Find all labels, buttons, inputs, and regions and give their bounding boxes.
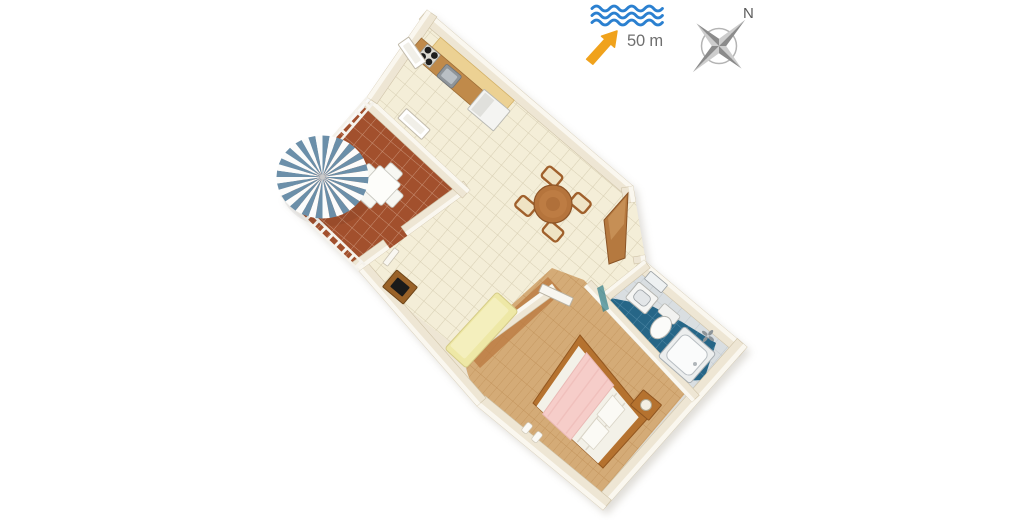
svg-text:N: N: [743, 5, 754, 22]
svg-text:50 m: 50 m: [627, 32, 663, 50]
